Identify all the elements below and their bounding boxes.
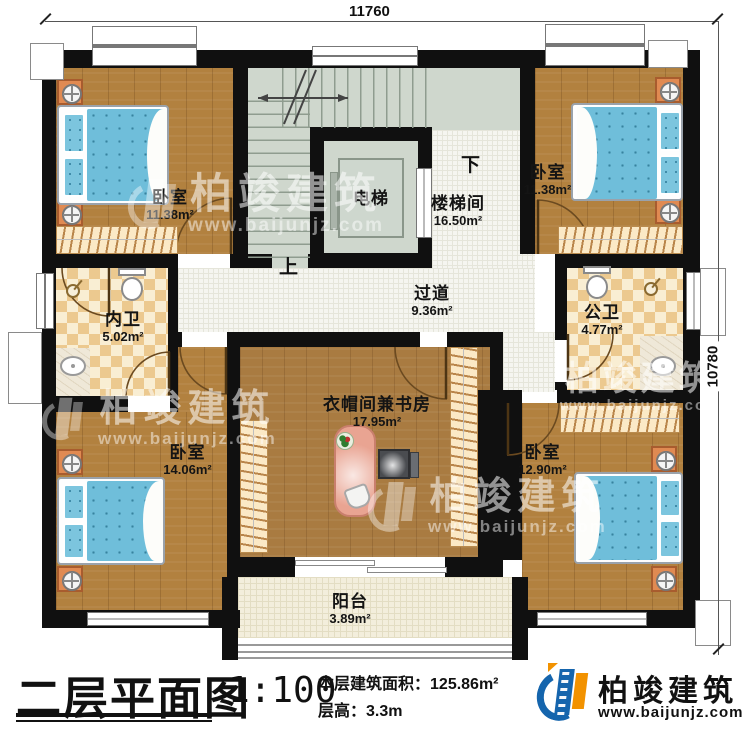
wall-right (683, 50, 700, 628)
floor-height-label: 层高： (318, 703, 366, 720)
pillow (63, 157, 85, 197)
pillow (63, 484, 85, 520)
title-underline (16, 713, 212, 717)
wall-bedroomtl-stair (233, 68, 248, 254)
wall-study-bottom-a (227, 557, 295, 577)
room-label-public-bath: 公卫 4.77m² (552, 303, 652, 337)
nightstand (57, 79, 83, 105)
lamp-icon (660, 82, 680, 102)
lamp-icon (62, 454, 82, 474)
floor-area-label: 本层建筑面积： (318, 676, 430, 693)
company-logo-icon (540, 663, 590, 725)
wall-stair-bedroomtr (520, 68, 535, 254)
window (92, 26, 197, 66)
lamp-icon (660, 203, 680, 223)
nightstand (655, 198, 681, 224)
window (312, 46, 418, 66)
toilet (118, 268, 146, 276)
wall-hall-c (447, 332, 503, 347)
lamp-icon (62, 205, 82, 225)
wall-mid-1 (42, 254, 178, 268)
nightstand (651, 566, 677, 592)
sink (60, 356, 86, 376)
floor-height-value: 3.3m (366, 703, 402, 720)
window (537, 612, 647, 626)
wall-left (42, 50, 56, 628)
room-label-stairwell: 楼梯间 16.50m² (408, 194, 508, 228)
toilet-bowl (121, 277, 143, 301)
balcony-rail-2 (238, 651, 512, 653)
window (87, 612, 209, 626)
window-sill (695, 600, 731, 646)
shower-icon (644, 282, 658, 296)
lamp-icon (656, 571, 676, 591)
dimension-line-top (45, 21, 718, 22)
balcony-rail-1 (238, 644, 512, 646)
wardrobe (56, 226, 178, 254)
lamp-icon (656, 451, 676, 471)
shower-icon (66, 284, 80, 298)
floor-area-value: 125.86m² (430, 676, 499, 693)
wardrobe (558, 226, 683, 254)
room-label-hallway: 过道 9.36m² (382, 284, 482, 318)
dimension-width: 11760 (345, 3, 394, 20)
lamp-icon (62, 571, 82, 591)
window-sill (30, 43, 64, 80)
wardrobe (450, 347, 478, 547)
lamp-icon (62, 84, 82, 104)
dimension-tick (39, 13, 51, 25)
pillow (659, 479, 681, 517)
room-label-inner-bath: 内卫 5.02m² (73, 310, 173, 344)
wall-bedroombr-top-b (557, 390, 700, 403)
toilet-bowl (586, 275, 608, 299)
wall-hall-b (227, 332, 420, 347)
stair-up-label: 上 (279, 252, 298, 279)
toilet (583, 266, 611, 274)
title-underline (16, 720, 212, 722)
wall-hall-a (178, 332, 182, 347)
door-arc (126, 352, 170, 396)
floor-height-row: 层高：3.3m (318, 697, 402, 721)
nightstand (57, 449, 83, 475)
room-label-bedroom-br: 卧室 12.90m² (490, 443, 595, 477)
room-label-bedroom-tr: 卧室 11.38m² (495, 163, 600, 197)
pillow (659, 111, 681, 151)
stair-down-label: 下 (461, 150, 480, 177)
nightstand (651, 446, 677, 472)
window (545, 24, 645, 66)
floor-area-row: 本层建筑面积：125.86m² (318, 670, 499, 694)
door-arc (180, 347, 227, 394)
company-website: www.baijunjz.com (598, 704, 743, 721)
nightstand (57, 566, 83, 592)
stair-direction-arrow (248, 62, 438, 132)
title-block: 二层平面图 1:100 本层建筑面积：125.86m² 层高：3.3m 柏竣建筑… (0, 660, 750, 733)
wardrobe (240, 420, 268, 553)
wall-innerbath-bottom-a (42, 396, 128, 412)
wall-corridor-left (490, 347, 503, 392)
nightstand (655, 77, 681, 103)
computer-tower (410, 452, 419, 478)
wall-bedroombr-top-a (503, 390, 507, 403)
plan-title: 二层平面图 (16, 662, 251, 727)
balcony-slide-door-1 (295, 560, 375, 566)
balcony-pier-right (512, 577, 528, 662)
door-arc (567, 334, 613, 380)
wall-mid-4 (558, 254, 683, 268)
pillow (659, 520, 681, 558)
room-label-study: 衣帽间兼书房 17.95m² (297, 395, 457, 429)
dimension-line-right (718, 21, 719, 655)
pillow (659, 155, 681, 195)
plant-icon (336, 432, 354, 450)
bed (574, 472, 683, 564)
window-sill (700, 268, 726, 336)
balcony-pier-left (222, 577, 238, 662)
window-sill (648, 40, 688, 68)
sink (650, 356, 676, 376)
room-label-bedroom-tl: 卧室 11.38m² (115, 188, 225, 222)
dimension-height: 10780 (704, 342, 721, 392)
window (36, 273, 54, 329)
floorplan-drawing: 卧室 11.38m² 电梯 楼梯间 16.50m² 卧室 11.38m² 内卫 … (0, 0, 750, 660)
pillow (63, 523, 85, 559)
window-sill (8, 332, 42, 404)
bed (57, 477, 165, 565)
hallway-stem-floor (503, 332, 555, 392)
balcony-slide-door-2 (367, 567, 447, 573)
wall-publicbath-left-b (555, 382, 567, 390)
room-label-balcony: 阳台 3.89m² (300, 592, 400, 626)
room-label-bedroom-bl: 卧室 14.06m² (135, 443, 240, 477)
room-label-elevator: 电梯 (336, 189, 406, 209)
balcony-rail-3 (238, 657, 512, 659)
floorplan-page: 卧室 11.38m² 电梯 楼梯间 16.50m² 卧室 11.38m² 内卫 … (0, 0, 750, 733)
pillow (63, 113, 85, 153)
wall-study-bottom-b (445, 557, 503, 577)
computer-monitor (378, 449, 410, 479)
door-arc (395, 347, 447, 399)
wall-innerbath-bottom-b (170, 396, 178, 412)
wardrobe (560, 405, 680, 433)
